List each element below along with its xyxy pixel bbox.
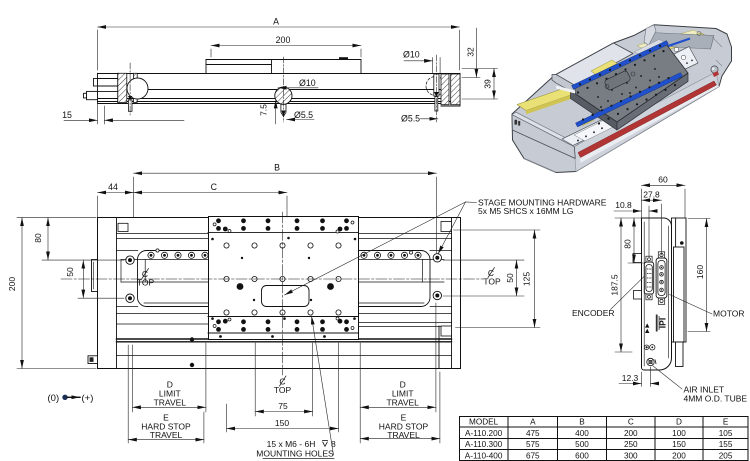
svg-text:C: C — [628, 418, 634, 427]
svg-text:Ø10: Ø10 — [403, 50, 420, 60]
svg-text:A-110.300: A-110.300 — [465, 440, 503, 449]
svg-text:80: 80 — [33, 233, 43, 243]
svg-text:44: 44 — [108, 182, 118, 192]
svg-text:15: 15 — [62, 110, 72, 120]
svg-text:B: B — [579, 418, 585, 427]
svg-text:250: 250 — [624, 440, 638, 449]
svg-text:A: A — [530, 418, 536, 427]
svg-text:39: 39 — [483, 79, 493, 89]
svg-text:50: 50 — [505, 273, 515, 283]
svg-text:(+): (+) — [82, 393, 94, 404]
svg-text:Ø10: Ø10 — [299, 78, 316, 88]
svg-text:4MM O.D. TUBE: 4MM O.D. TUBE — [684, 394, 748, 404]
svg-text:105: 105 — [719, 429, 733, 438]
svg-text:MOTOR: MOTOR — [713, 309, 744, 319]
svg-text:205: 205 — [719, 451, 733, 460]
svg-text:27.8: 27.8 — [643, 190, 660, 200]
svg-text:A: A — [273, 17, 279, 27]
svg-text:ENCODER: ENCODER — [572, 308, 615, 318]
svg-text:TRAVEL: TRAVEL — [387, 430, 420, 440]
svg-text:10.8: 10.8 — [615, 200, 632, 210]
svg-text:TRAVEL: TRAVEL — [386, 397, 419, 407]
svg-text:TRAVEL: TRAVEL — [154, 397, 187, 407]
svg-text:5x M5 SHCS x 16MM LG: 5x M5 SHCS x 16MM LG — [478, 206, 573, 216]
svg-text:125: 125 — [522, 272, 532, 286]
svg-text:400: 400 — [575, 429, 589, 438]
svg-text:D: D — [676, 418, 682, 427]
svg-text:100: 100 — [672, 429, 686, 438]
svg-text:187.5: 187.5 — [610, 274, 620, 296]
svg-text:575: 575 — [526, 440, 540, 449]
svg-text:TOP: TOP — [274, 385, 292, 395]
svg-text:75: 75 — [278, 401, 288, 411]
svg-text:TOP: TOP — [137, 278, 155, 288]
svg-text:80: 80 — [623, 239, 633, 249]
svg-text:TOP: TOP — [483, 277, 501, 287]
svg-text:A-110-400: A-110-400 — [465, 451, 503, 460]
svg-text:200: 200 — [7, 277, 17, 291]
svg-text:TRAVEL: TRAVEL — [150, 430, 183, 440]
svg-text:155: 155 — [719, 440, 733, 449]
svg-text:50: 50 — [65, 267, 75, 277]
svg-text:E: E — [723, 418, 729, 427]
svg-text:150: 150 — [672, 440, 686, 449]
svg-text:C: C — [211, 182, 218, 192]
svg-text:300: 300 — [624, 451, 638, 460]
svg-text:475: 475 — [526, 429, 540, 438]
svg-text:500: 500 — [575, 440, 589, 449]
svg-text:160: 160 — [695, 265, 705, 279]
svg-text:600: 600 — [575, 451, 589, 460]
svg-text:B: B — [274, 163, 280, 173]
svg-text:(0): (0) — [48, 393, 60, 404]
svg-text:7.5: 7.5 — [259, 104, 269, 116]
svg-text:200: 200 — [624, 429, 638, 438]
svg-text:12.3: 12.3 — [622, 373, 639, 383]
svg-text:A-110.200: A-110.200 — [465, 429, 503, 438]
svg-text:MODEL: MODEL — [469, 418, 499, 427]
svg-text:200: 200 — [672, 451, 686, 460]
svg-text:200: 200 — [276, 35, 291, 45]
svg-text:60: 60 — [658, 175, 668, 185]
svg-text:Ø5.5: Ø5.5 — [294, 110, 313, 120]
svg-text:32: 32 — [466, 47, 476, 57]
svg-text:Ø5.5: Ø5.5 — [401, 114, 420, 124]
svg-text:MOUNTING HOLES: MOUNTING HOLES — [256, 448, 334, 458]
svg-text:150: 150 — [275, 418, 289, 428]
svg-text:675: 675 — [526, 451, 540, 460]
